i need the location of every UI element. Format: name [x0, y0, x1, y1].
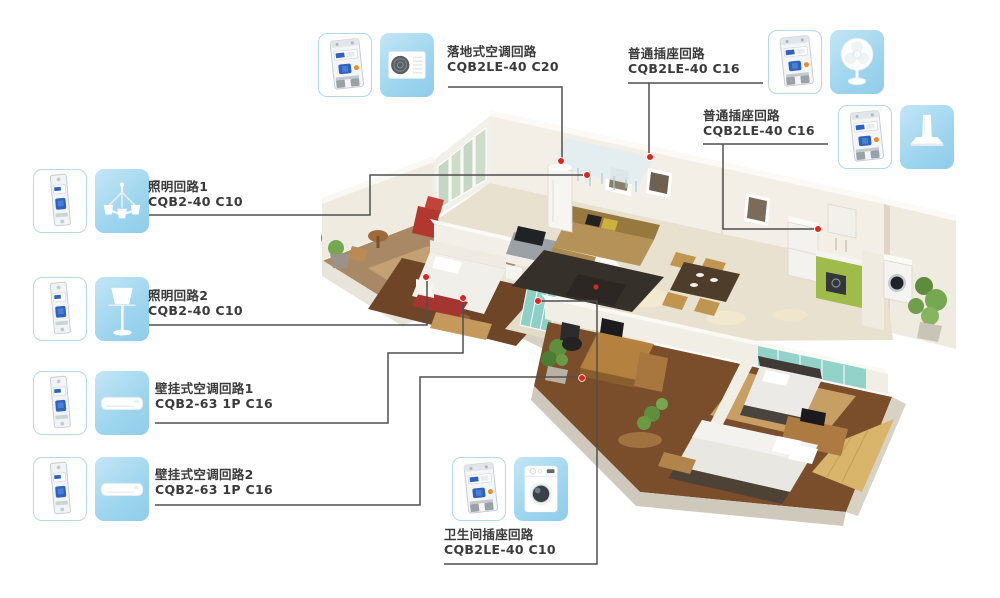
circuit-model: CQB2LE-40 C10: [444, 543, 556, 558]
breaker-tile: [33, 169, 87, 233]
wall-ac-icon: [96, 372, 148, 434]
callout-light-2-tiles: [33, 277, 149, 341]
breaker-2p-icon: [453, 458, 505, 520]
breaker-1p-icon: [34, 278, 86, 340]
circuit-model: CQB2-40 C10: [148, 304, 243, 319]
dot-light-2: [423, 274, 430, 281]
dot-socket-hood: [815, 226, 822, 233]
appliance-tile: [95, 277, 149, 341]
washing-machine-icon: [515, 458, 567, 520]
circuit-name: 落地式空调回路: [447, 45, 559, 60]
dot-bath-socket: [535, 298, 542, 305]
callout-bath-socket-label: 卫生间插座回路 CQB2LE-40 C10: [444, 528, 556, 557]
callout-wall-ac-1-label: 壁挂式空调回路1 CQB2-63 1P C16: [155, 382, 273, 411]
breaker-tile: [768, 30, 822, 94]
circuit-model: CQB2-40 C10: [148, 195, 243, 210]
callout-wall-ac-1-tiles: [33, 371, 149, 435]
chandelier-icon: [96, 170, 148, 232]
callout-wall-ac-2-label: 壁挂式空调回路2 CQB2-63 1P C16: [155, 468, 273, 497]
callout-socket-fan-label: 普通插座回路 CQB2LE-40 C16: [628, 47, 740, 76]
breaker-1p-icon: [34, 372, 86, 434]
circuit-model: CQB2LE-40 C16: [703, 124, 815, 139]
breaker-2p-icon: [769, 31, 821, 93]
circuit-name: 照明回路2: [148, 289, 243, 304]
circuit-name: 照明回路1: [148, 180, 243, 195]
dot-wall-ac-1: [460, 295, 467, 302]
floor-lamp-icon: [96, 278, 148, 340]
table-fan-icon: [831, 31, 883, 93]
breaker-1p-icon: [34, 458, 86, 520]
callout-light-2-label: 照明回路2 CQB2-40 C10: [148, 289, 243, 318]
apartment-illustration: [316, 110, 956, 526]
callout-socket-fan-tiles: [768, 30, 884, 94]
circuit-name: 普通插座回路: [703, 109, 815, 124]
circuit-model: CQB2LE-40 C20: [447, 60, 559, 75]
dot-socket-fan: [647, 154, 654, 161]
circuit-model: CQB2-63 1P C16: [155, 483, 273, 498]
appliance-tile: [514, 457, 568, 521]
breaker-2p-icon: [839, 106, 891, 168]
appliance-tile: [95, 457, 149, 521]
breaker-1p-icon: [34, 170, 86, 232]
breaker-tile: [452, 457, 506, 521]
breaker-tile: [33, 457, 87, 521]
appliance-tile: [830, 30, 884, 94]
breaker-tile: [33, 371, 87, 435]
breaker-tile: [318, 33, 372, 97]
callout-floor-ac-tiles: [318, 33, 434, 97]
appliance-tile: [95, 371, 149, 435]
wall-ac-icon: [96, 458, 148, 520]
dot-wall-ac-2: [579, 375, 586, 382]
callout-bath-socket-tiles: [452, 457, 568, 521]
appliance-tile: [900, 105, 954, 169]
callout-socket-hood-tiles: [838, 105, 954, 169]
ac-outdoor-icon: [381, 34, 433, 96]
callout-light-1-label: 照明回路1 CQB2-40 C10: [148, 180, 243, 209]
callout-light-1-tiles: [33, 169, 149, 233]
appliance-tile: [95, 169, 149, 233]
callout-socket-hood-label: 普通插座回路 CQB2LE-40 C16: [703, 109, 815, 138]
circuit-name: 壁挂式空调回路2: [155, 468, 273, 483]
callout-floor-ac-label: 落地式空调回路 CQB2LE-40 C20: [447, 45, 559, 74]
breaker-2p-icon: [319, 34, 371, 96]
circuit-name: 卫生间插座回路: [444, 528, 556, 543]
appliance-tile: [380, 33, 434, 97]
dot-light-1: [584, 172, 591, 179]
breaker-tile: [838, 105, 892, 169]
page: { "figure": { "description_visible": "",…: [0, 0, 1000, 598]
breaker-tile: [33, 277, 87, 341]
circuit-name: 壁挂式空调回路1: [155, 382, 273, 397]
circuit-model: CQB2LE-40 C16: [628, 62, 740, 77]
circuit-name: 普通插座回路: [628, 47, 740, 62]
callout-wall-ac-2-tiles: [33, 457, 149, 521]
dot-floor-ac: [558, 158, 565, 165]
range-hood-icon: [901, 106, 953, 168]
circuit-model: CQB2-63 1P C16: [155, 397, 273, 412]
